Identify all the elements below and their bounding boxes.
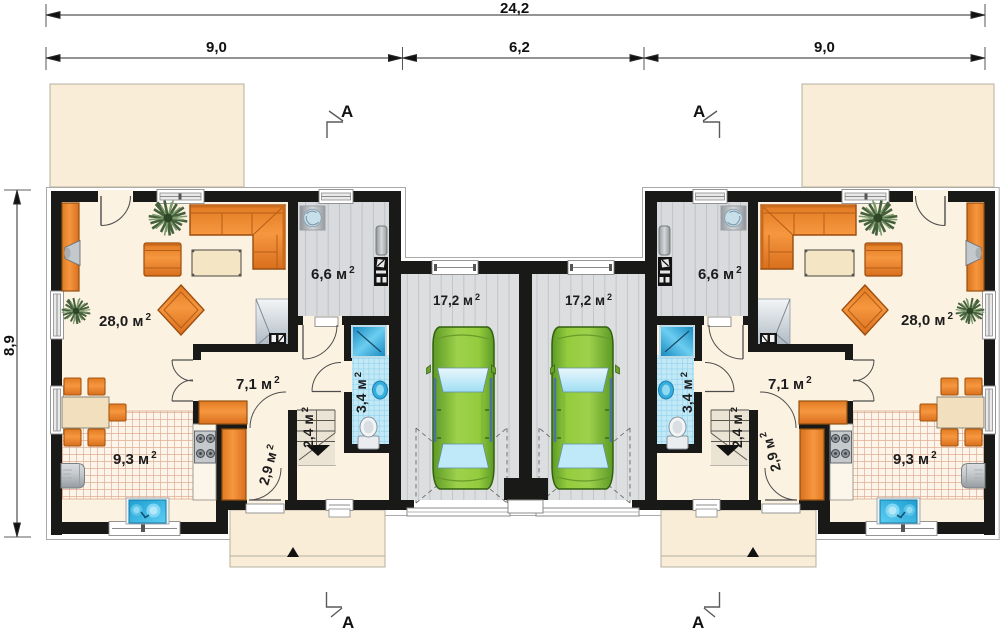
- svg-text:8,9: 8,9: [1, 335, 18, 356]
- svg-text:A: A: [692, 613, 704, 629]
- svg-text:6,2: 6,2: [509, 39, 530, 56]
- svg-text:A: A: [341, 102, 353, 121]
- svg-text:9,0: 9,0: [206, 39, 227, 56]
- svg-text:A: A: [342, 613, 354, 629]
- svg-text:9,0: 9,0: [814, 39, 835, 56]
- svg-text:A: A: [693, 102, 705, 121]
- svg-text:17,2 м2: 17,2 м2: [565, 292, 612, 308]
- svg-text:17,2 м2: 17,2 м2: [433, 292, 480, 308]
- svg-text:24,2: 24,2: [500, 0, 529, 17]
